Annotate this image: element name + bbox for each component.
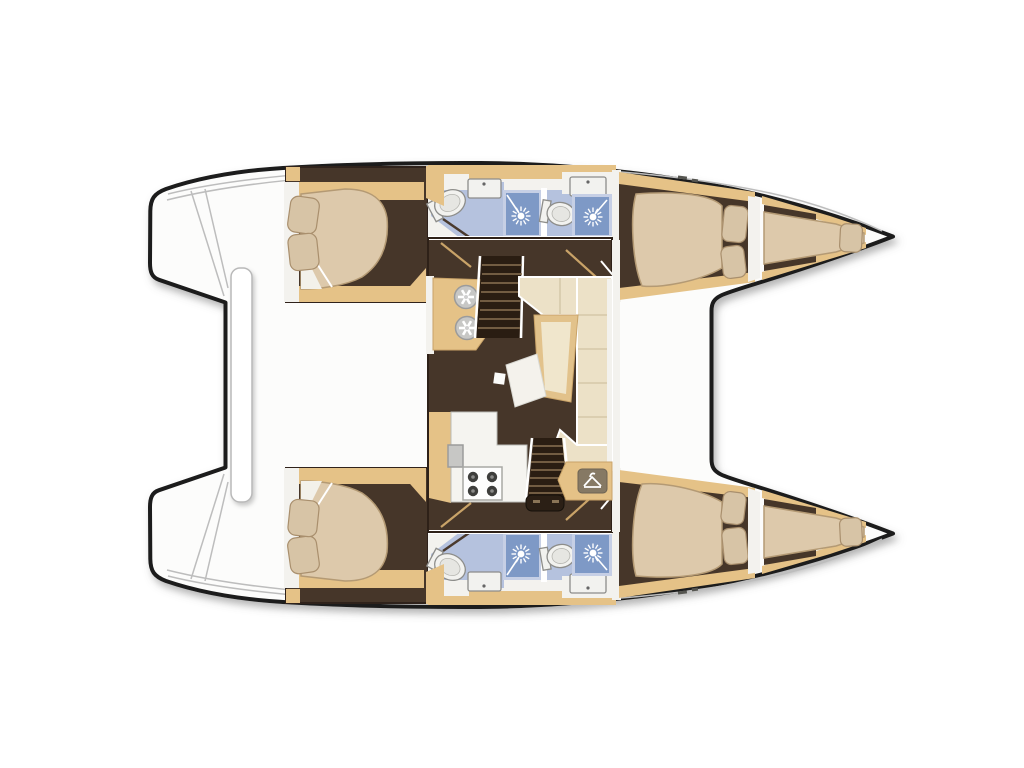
saloon: [426, 238, 620, 532]
galley-sink: [448, 445, 463, 467]
catamaran-floorplan-image: [0, 0, 1024, 768]
wardrobe-seat: [558, 462, 612, 500]
side-walkway: [612, 240, 620, 532]
floorplan-svg: [0, 0, 1024, 768]
stove: [463, 467, 502, 500]
sofa-backrest: [607, 279, 612, 468]
aft-bench: [231, 268, 252, 502]
stairs-upper-hull: [475, 256, 523, 338]
floor-hatch: [493, 372, 505, 384]
door-threshold: [526, 495, 564, 511]
